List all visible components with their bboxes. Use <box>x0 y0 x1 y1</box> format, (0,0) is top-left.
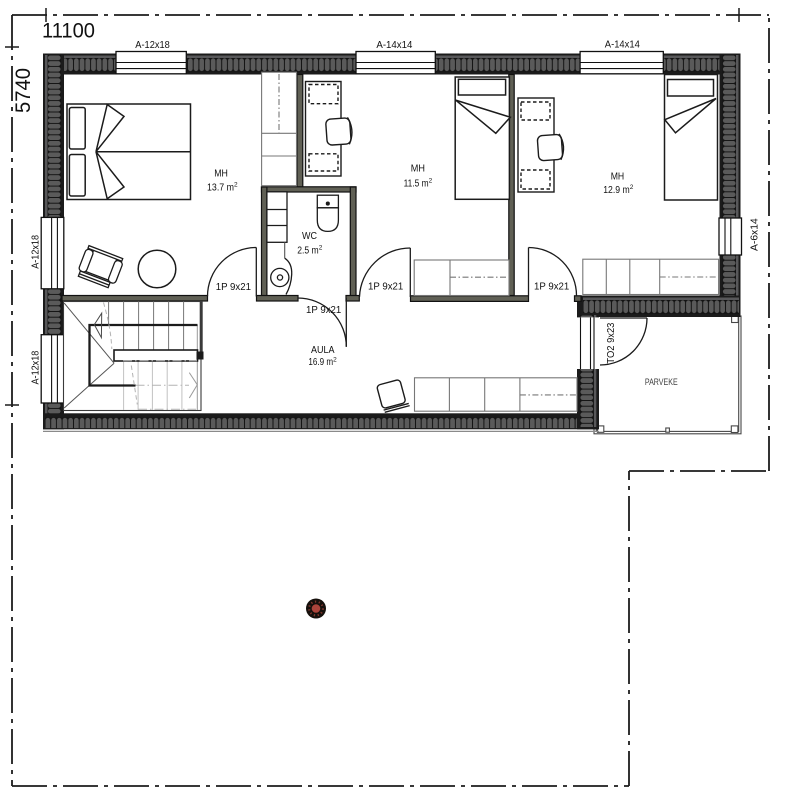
svg-text:A-12x18: A-12x18 <box>30 351 42 385</box>
svg-text:A-6x14: A-6x14 <box>749 218 761 251</box>
svg-text:TO2 9x23: TO2 9x23 <box>605 322 617 363</box>
svg-text:11.5 m2: 11.5 m2 <box>404 178 433 190</box>
svg-text:A-14x14: A-14x14 <box>376 39 412 51</box>
svg-text:MH: MH <box>214 169 228 180</box>
svg-text:A-12x18: A-12x18 <box>30 235 42 269</box>
svg-text:PARVEKE: PARVEKE <box>645 377 678 388</box>
svg-text:MH: MH <box>611 172 625 183</box>
svg-text:MH: MH <box>411 164 425 175</box>
svg-text:5740: 5740 <box>12 68 35 113</box>
svg-text:1P 9x21: 1P 9x21 <box>216 281 251 293</box>
svg-text:A-14x14: A-14x14 <box>605 39 640 51</box>
svg-text:AULA: AULA <box>311 345 335 356</box>
svg-text:13.7 m2: 13.7 m2 <box>207 182 238 194</box>
svg-text:11100: 11100 <box>42 19 95 43</box>
svg-text:1P 9x21: 1P 9x21 <box>368 281 403 293</box>
svg-text:WC: WC <box>302 231 317 242</box>
svg-text:A-12x18: A-12x18 <box>135 39 170 51</box>
svg-text:1P 9x21: 1P 9x21 <box>306 304 341 316</box>
svg-text:16.9 m2: 16.9 m2 <box>308 356 337 368</box>
svg-text:1P 9x21: 1P 9x21 <box>534 281 569 293</box>
svg-text:12.9 m2: 12.9 m2 <box>603 184 634 196</box>
